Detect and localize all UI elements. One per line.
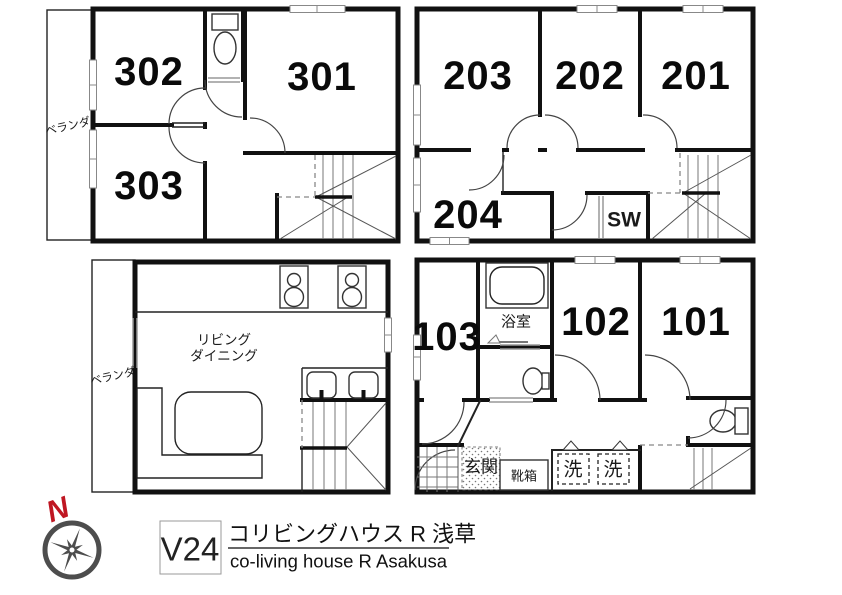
- room-label-102: 102: [561, 300, 631, 344]
- door-arcs-3f: [169, 80, 285, 163]
- washer-left-label: 洗: [563, 459, 582, 481]
- room-label-101: 101: [661, 300, 731, 344]
- stairs-3f: [277, 155, 396, 239]
- bathtub-icon: [486, 263, 548, 308]
- toilet-icon-3f: [212, 14, 238, 64]
- room-label-204: 204: [433, 193, 503, 237]
- washer-right-label: 洗: [603, 459, 622, 481]
- shoebox-label: 靴箱: [511, 469, 537, 484]
- room-label-301: 301: [287, 55, 357, 99]
- compass: N: [42, 490, 99, 577]
- angled-wall-genkan: [458, 401, 480, 446]
- washroom-slider: [489, 398, 533, 402]
- porch-tiles: [417, 447, 458, 492]
- closet-label-sw: SW: [607, 209, 641, 232]
- floor-plan-2f: 203 202 201 204 SW: [414, 6, 754, 245]
- floor-plan-living: リビング ダイニング ベランダ: [89, 260, 392, 492]
- room-label-201: 201: [661, 54, 731, 98]
- toilet-icon-1f: [710, 408, 748, 434]
- dining-table: [175, 392, 262, 454]
- floorplan-sheet: 302 301 303 ベランダ 203 202 201 204 SW: [0, 0, 842, 595]
- drawing-code: V24: [161, 531, 220, 568]
- bath-label: 浴室: [501, 314, 531, 331]
- title-english: co-living house R Asakusa: [230, 551, 448, 572]
- washbasin-icon: [523, 368, 549, 394]
- floor-plan-3f: 302 301 303 ベランダ: [44, 6, 398, 242]
- bench-sofa: [137, 388, 262, 478]
- sw-pocket-door: [599, 196, 603, 238]
- title-japanese: コリビングハウス R 浅草: [228, 522, 476, 547]
- room-label-202: 202: [555, 54, 625, 98]
- stairs-1f: [690, 448, 751, 490]
- balcony-label-living: ベランダ: [89, 364, 137, 388]
- room-label-303: 303: [114, 164, 184, 208]
- title-block: V24 コリビングハウス R 浅草 co-living house R Asak…: [160, 521, 476, 574]
- room-label-203: 203: [443, 54, 513, 98]
- stove-icons: [280, 266, 366, 308]
- entrance-label: 玄関: [464, 458, 498, 477]
- stairs-2f: [648, 153, 751, 239]
- balcony-label-3f: ベランダ: [44, 114, 92, 138]
- room-label-103: 103: [412, 315, 482, 359]
- stairs-living: [300, 400, 386, 490]
- wall-jamb-3f: [172, 123, 205, 127]
- floor-plan-1f: 103 102 101 浴室 玄関 靴箱 洗 洗: [412, 257, 753, 493]
- floorplan-drawing: 302 301 303 ベランダ 203 202 201 204 SW: [0, 0, 842, 595]
- room-label-302: 302: [114, 50, 184, 94]
- living-label-line1: リビング: [197, 333, 251, 348]
- compass-center: [70, 548, 75, 553]
- living-label-line2: ダイニング: [190, 349, 258, 364]
- toilet-slider-3f: [208, 78, 240, 82]
- windows-living: [133, 318, 392, 368]
- sink-icons: [307, 372, 378, 400]
